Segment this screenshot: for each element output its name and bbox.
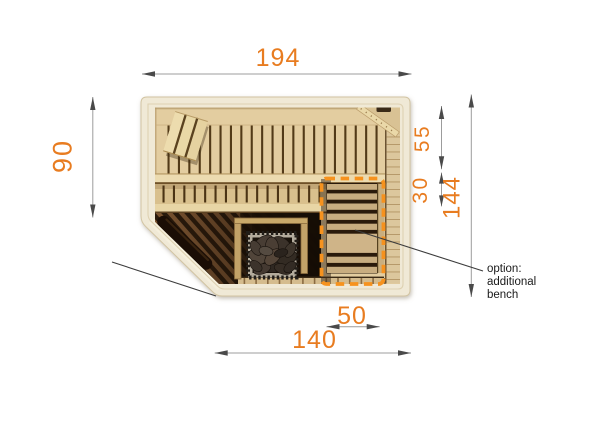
svg-text:additional: additional: [487, 276, 536, 288]
svg-text:140: 140: [292, 326, 337, 354]
svg-text:30: 30: [409, 175, 432, 203]
svg-text:50: 50: [337, 302, 367, 330]
svg-text:90: 90: [48, 139, 78, 173]
svg-text:option:: option:: [487, 263, 522, 275]
svg-text:144: 144: [439, 176, 466, 219]
svg-text:194: 194: [256, 44, 301, 72]
svg-text:bench: bench: [487, 289, 518, 301]
svg-text:55: 55: [411, 124, 434, 152]
